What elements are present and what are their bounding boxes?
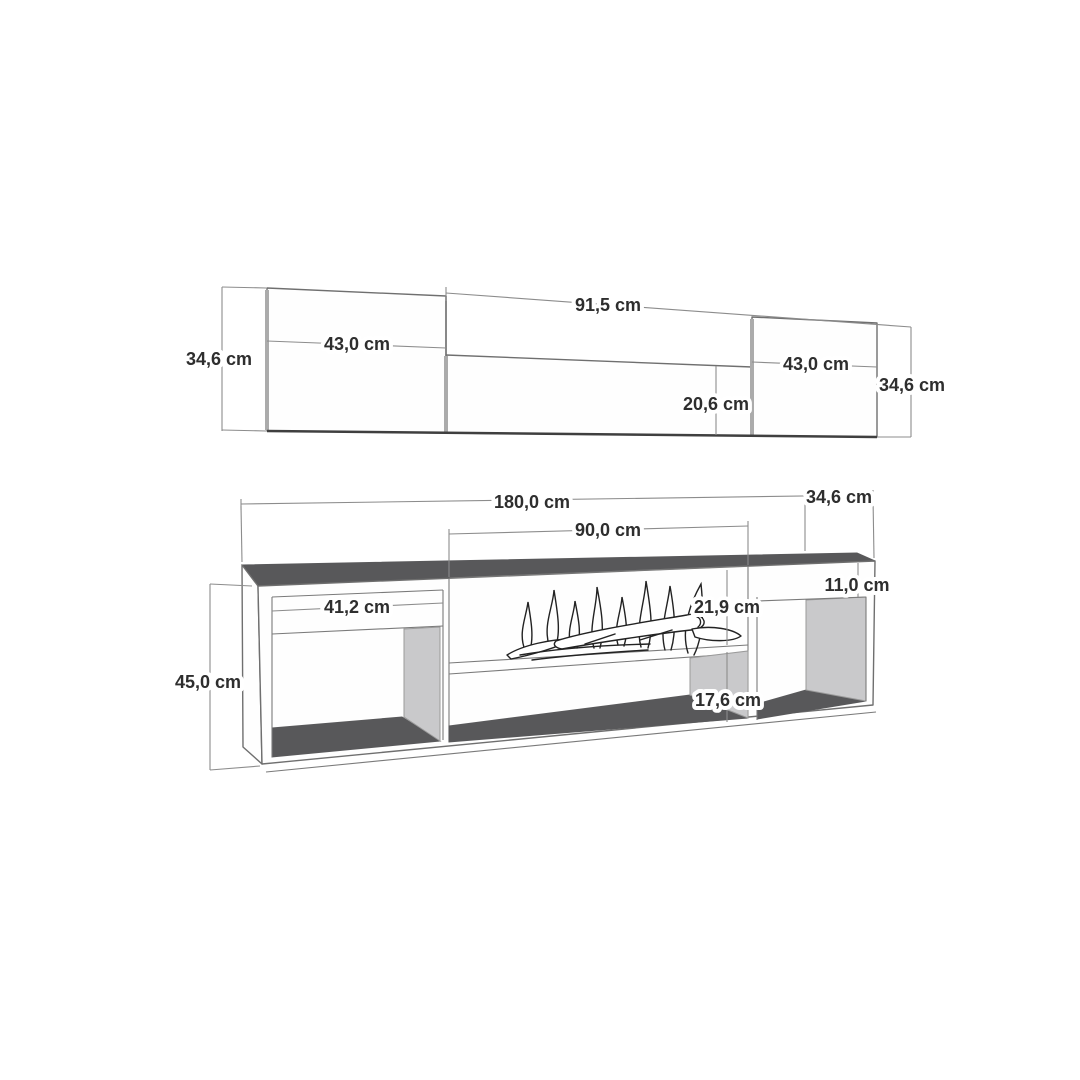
dim-ext [222, 287, 266, 288]
dim-ext [222, 430, 266, 431]
dim-ext [241, 506, 242, 562]
dim-label-height-right: 34,6 cm [879, 375, 945, 395]
right-door-panel [752, 317, 877, 437]
dim-label-height-left: 34,6 cm [186, 349, 252, 369]
right-compartment-side-wall [806, 597, 866, 701]
dim-label-total-height: 45,0 cm [175, 672, 241, 692]
dim-label-right-door-width: 43,0 cm [783, 354, 849, 374]
dim-middle-width-line [446, 293, 911, 327]
furniture-dimension-diagram: 34,6 cm 43,0 cm 91,5 cm 20,6 cm 43,0 cm … [0, 0, 1080, 1080]
dim-label-bottom-shelf-height: 17,6 cm [695, 690, 761, 710]
dim-ext [873, 497, 874, 558]
dim-label-middle-width: 91,5 cm [575, 295, 641, 315]
technical-drawing-page: 34,6 cm 43,0 cm 91,5 cm 20,6 cm 43,0 cm … [0, 0, 1080, 1080]
left-door-panel [267, 288, 446, 433]
dim-label-total-width: 180,0 cm [494, 492, 570, 512]
dim-label-fireplace-width: 90,0 cm [575, 520, 641, 540]
dim-label-left-compartment-width: 41,2 cm [324, 597, 390, 617]
perspective-drawing: 180,0 cm 34,6 cm 90,0 cm 11,0 cm 41,2 cm… [175, 487, 890, 772]
front-elevation-drawing: 34,6 cm 43,0 cm 91,5 cm 20,6 cm 43,0 cm … [186, 287, 945, 437]
dim-label-fireplace-height: 21,9 cm [694, 597, 760, 617]
dim-label-depth: 34,6 cm [806, 487, 872, 507]
dim-label-middle-panel-height: 20,6 cm [683, 394, 749, 414]
dim-label-left-door-width: 43,0 cm [324, 334, 390, 354]
dim-label-top-shelf-height: 11,0 cm [824, 575, 889, 595]
dim-ext [210, 766, 260, 770]
